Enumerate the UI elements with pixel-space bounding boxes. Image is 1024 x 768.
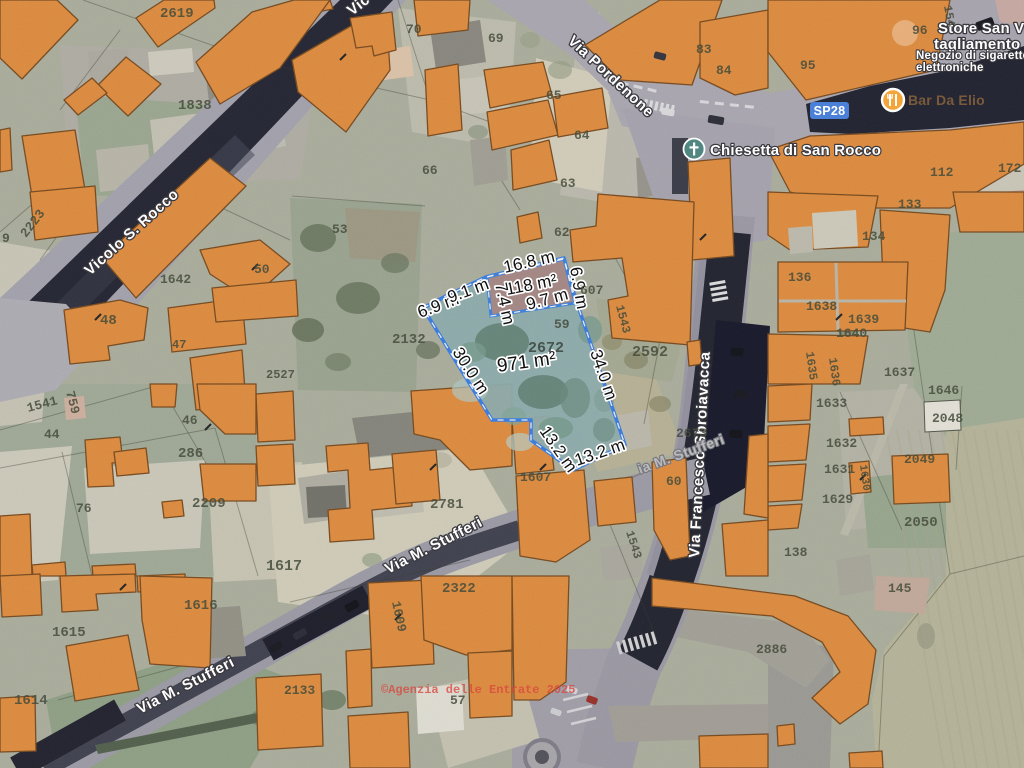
svg-text:286: 286 [178, 446, 203, 462]
svg-text:1631: 1631 [824, 462, 855, 477]
svg-text:2322: 2322 [442, 581, 476, 597]
svg-text:46: 46 [182, 413, 198, 428]
svg-text:2673: 2673 [676, 426, 707, 441]
svg-text:60: 60 [666, 474, 682, 489]
svg-text:1617: 1617 [266, 558, 302, 575]
svg-text:44: 44 [44, 427, 60, 442]
svg-text:2527: 2527 [266, 368, 295, 382]
svg-text:70: 70 [406, 22, 422, 37]
svg-text:134: 134 [862, 229, 886, 244]
svg-text:47: 47 [172, 338, 186, 352]
svg-text:2050: 2050 [904, 515, 938, 531]
svg-text:1642: 1642 [160, 272, 191, 287]
svg-text:2049: 2049 [904, 452, 935, 467]
svg-text:2781: 2781 [430, 497, 464, 513]
svg-text:62: 62 [554, 225, 570, 240]
svg-text:95: 95 [800, 58, 816, 73]
svg-text:1646: 1646 [928, 383, 959, 398]
svg-text:59: 59 [554, 317, 570, 332]
svg-text:1639: 1639 [848, 312, 879, 327]
svg-text:63: 63 [560, 176, 576, 191]
svg-text:1614: 1614 [14, 693, 48, 709]
svg-text:112: 112 [930, 165, 954, 180]
svg-text:50: 50 [254, 262, 270, 277]
svg-text:1632: 1632 [826, 436, 857, 451]
svg-text:1638: 1638 [806, 299, 837, 314]
svg-text:83: 83 [696, 42, 712, 57]
svg-text:136: 136 [788, 270, 812, 285]
svg-text:65: 65 [546, 88, 562, 103]
svg-text:1640: 1640 [836, 326, 867, 341]
svg-text:53: 53 [332, 222, 348, 237]
svg-text:2209: 2209 [192, 496, 226, 512]
svg-text:69: 69 [488, 31, 504, 46]
svg-text:84: 84 [716, 63, 732, 78]
svg-text:172: 172 [998, 161, 1022, 176]
svg-text:1629: 1629 [822, 492, 853, 507]
svg-text:1615: 1615 [52, 625, 86, 641]
svg-text:96: 96 [912, 23, 928, 38]
svg-text:1838: 1838 [178, 98, 212, 114]
svg-text:2592: 2592 [632, 344, 668, 361]
svg-text:1616: 1616 [184, 598, 218, 614]
svg-text:2048: 2048 [932, 411, 963, 426]
svg-text:138: 138 [784, 545, 808, 560]
svg-text:133: 133 [898, 197, 922, 212]
svg-text:66: 66 [422, 163, 438, 178]
svg-text:2672: 2672 [528, 340, 564, 357]
svg-text:607: 607 [580, 283, 603, 298]
svg-text:2133: 2133 [284, 683, 315, 698]
svg-text:145: 145 [888, 581, 912, 596]
svg-text:64: 64 [574, 128, 590, 143]
svg-text:2132: 2132 [392, 332, 426, 348]
svg-text:48: 48 [100, 313, 117, 329]
svg-text:1607: 1607 [520, 470, 551, 485]
svg-text:elettroniche: elettroniche [916, 62, 984, 74]
svg-text:1637: 1637 [884, 365, 915, 380]
svg-text:76: 76 [76, 501, 92, 516]
svg-text:SP28: SP28 [814, 104, 846, 118]
svg-text:©Agenzia delle Entrate 2025: ©Agenzia delle Entrate 2025 [381, 683, 575, 697]
svg-text:2619: 2619 [160, 6, 194, 22]
svg-text:2886: 2886 [756, 642, 787, 657]
svg-text:Bar Da Elio: Bar Da Elio [908, 92, 985, 108]
svg-text:9: 9 [2, 231, 10, 246]
svg-text:1633: 1633 [816, 396, 847, 411]
svg-text:Negozio di sigarette: Negozio di sigarette [916, 50, 1024, 62]
svg-text:Chiesetta di San Rocco: Chiesetta di San Rocco [710, 142, 881, 159]
